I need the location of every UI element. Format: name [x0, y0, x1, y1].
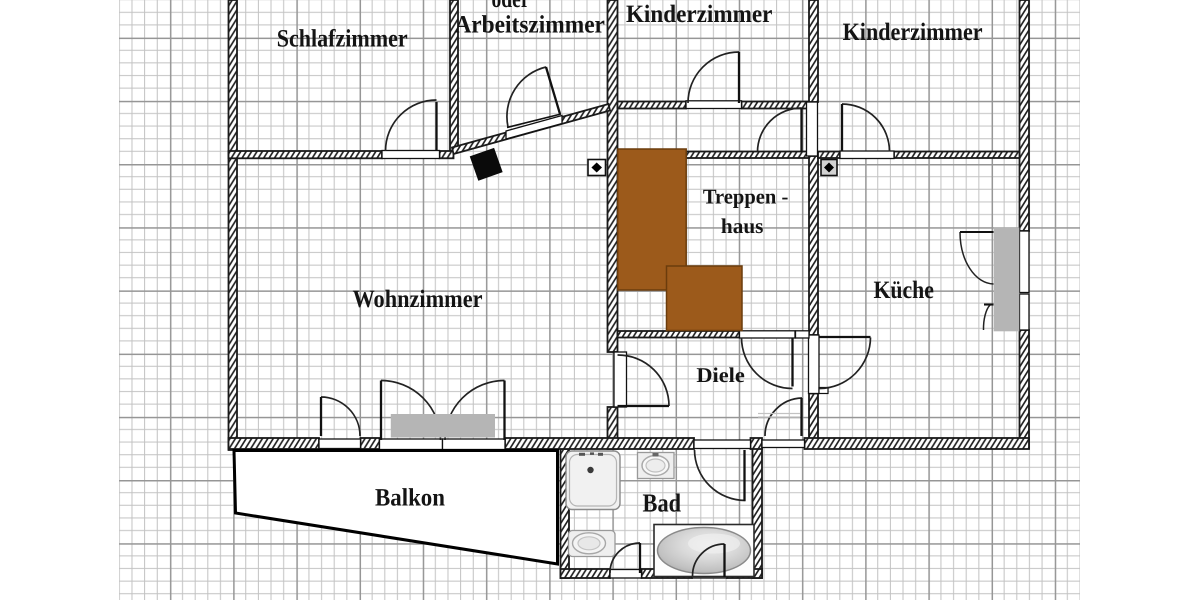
- svg-text:Arbeitszimmer: Arbeitszimmer: [454, 12, 605, 39]
- svg-text:Wohnzimmer: Wohnzimmer: [353, 286, 483, 313]
- svg-text:Küche: Küche: [873, 277, 934, 304]
- svg-text:Treppen -: Treppen -: [703, 185, 789, 209]
- svg-text:Balkon: Balkon: [375, 485, 445, 512]
- svg-text:Kinderzimmer: Kinderzimmer: [843, 19, 983, 46]
- svg-text:haus: haus: [721, 214, 764, 238]
- svg-text:Diele: Diele: [696, 363, 745, 387]
- svg-text:Kinderzimmer: Kinderzimmer: [626, 1, 773, 28]
- svg-text:Schlafzimmer: Schlafzimmer: [277, 26, 408, 53]
- svg-text:Bad: Bad: [643, 489, 682, 518]
